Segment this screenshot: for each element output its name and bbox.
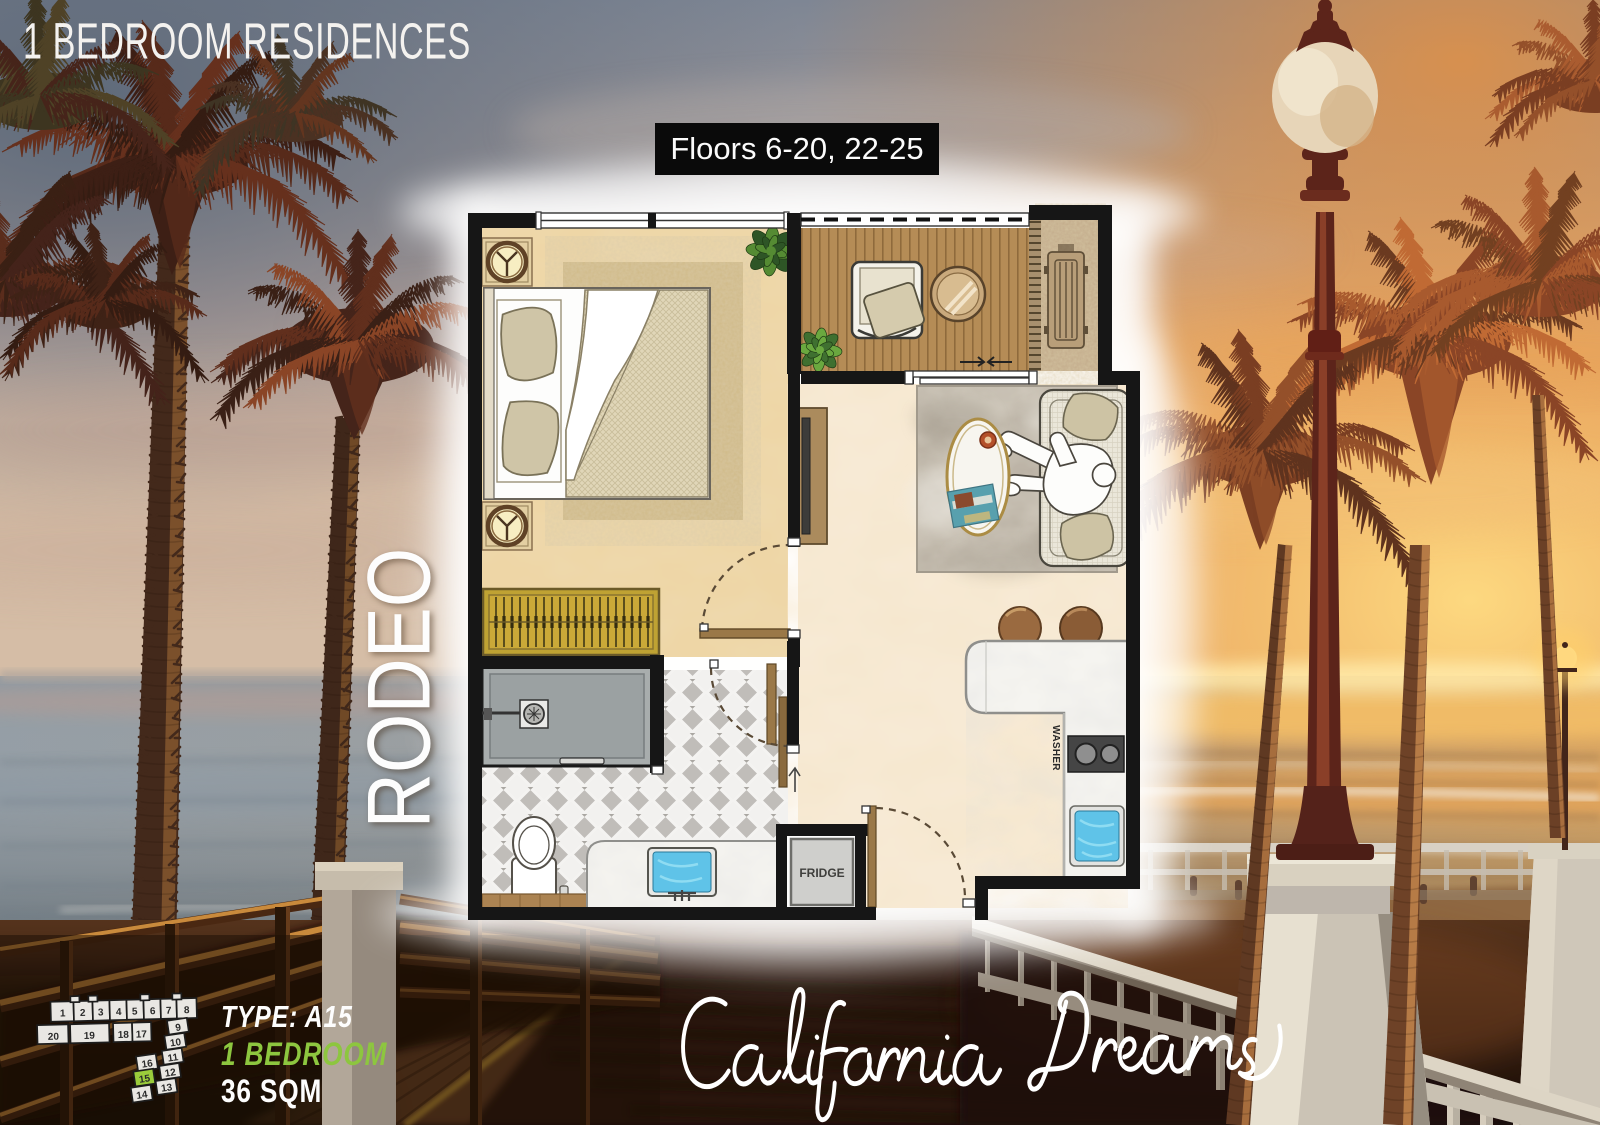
svg-text:2: 2 [80, 1008, 86, 1019]
svg-text:1: 1 [60, 1008, 66, 1019]
svg-text:4: 4 [116, 1007, 122, 1018]
svg-text:14: 14 [136, 1089, 149, 1102]
svg-text:19: 19 [84, 1031, 96, 1042]
svg-text:13: 13 [160, 1082, 173, 1095]
svg-text:7: 7 [166, 1006, 172, 1017]
svg-text:20: 20 [48, 1032, 60, 1043]
svg-text:8: 8 [184, 1005, 190, 1016]
svg-text:6: 6 [150, 1006, 156, 1017]
svg-text:15: 15 [138, 1073, 151, 1086]
svg-text:17: 17 [136, 1029, 148, 1040]
svg-text:WASHER: WASHER [1050, 725, 1061, 771]
svg-text:FRIDGE: FRIDGE [799, 866, 844, 880]
svg-text:18: 18 [118, 1030, 130, 1041]
svg-text:5: 5 [132, 1007, 138, 1018]
svg-text:3: 3 [98, 1007, 104, 1018]
